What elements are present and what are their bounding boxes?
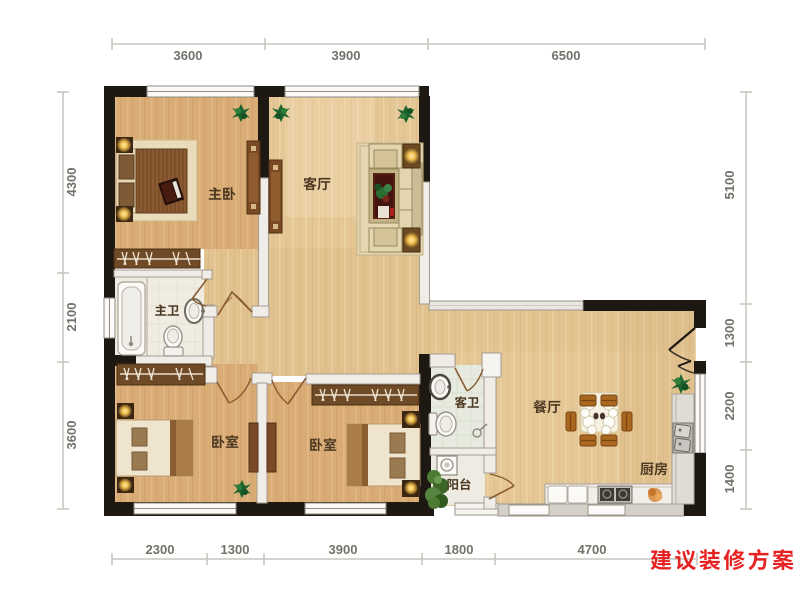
svg-text:2200: 2200 (722, 392, 737, 421)
svg-text:3600: 3600 (174, 48, 203, 63)
svg-text:1800: 1800 (445, 542, 474, 557)
svg-text:3900: 3900 (332, 48, 361, 63)
svg-text:2100: 2100 (64, 303, 79, 332)
svg-text:1300: 1300 (722, 319, 737, 348)
svg-text:6500: 6500 (552, 48, 581, 63)
svg-text:3600: 3600 (64, 421, 79, 450)
svg-text:1300: 1300 (221, 542, 250, 557)
svg-text:4300: 4300 (64, 168, 79, 197)
svg-text:2300: 2300 (146, 542, 175, 557)
svg-text:1400: 1400 (722, 465, 737, 494)
svg-text:5100: 5100 (722, 171, 737, 200)
svg-text:4700: 4700 (578, 542, 607, 557)
svg-text:3900: 3900 (329, 542, 358, 557)
